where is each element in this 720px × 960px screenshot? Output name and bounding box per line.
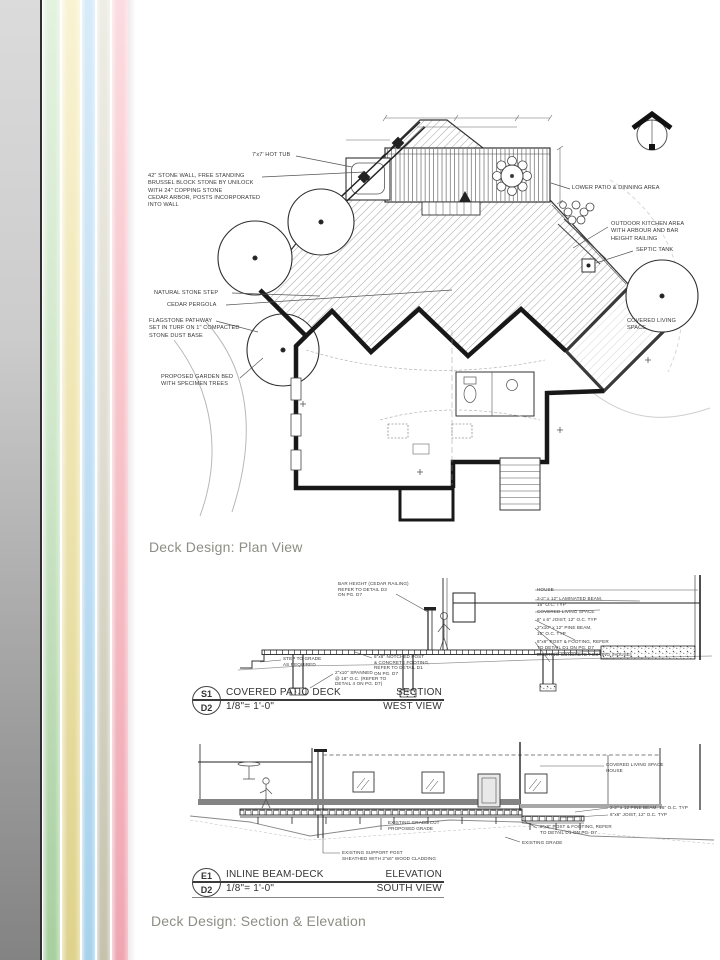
caption-plan-view: Deck Design: Plan View xyxy=(149,539,303,555)
stripe-fade xyxy=(128,0,136,960)
sheet-ref: D2 xyxy=(193,703,220,713)
label-natural-stone-step: NATURAL STONE STEP xyxy=(154,290,218,297)
label-stone-wall: 42" STONE WALL, FREE STANDING BRUSSEL BL… xyxy=(148,173,260,209)
label-house: HOUSE xyxy=(537,587,554,593)
section-leaders xyxy=(260,590,698,688)
patio-stairs xyxy=(422,202,480,215)
section-railing-person xyxy=(424,607,450,650)
label-lower-patio: LOWER PATIO & DINNING AREA xyxy=(572,185,660,192)
section-view-direction: WEST VIEW xyxy=(383,701,442,712)
north-arrow-icon xyxy=(633,114,671,150)
label-laminated-beam: 2-2" x 12" LAMINATED BEAM, 16" O.C. TYP xyxy=(537,596,602,607)
label-joist: 6" x 6" JOIST, 12" O.C. TYP xyxy=(537,617,597,623)
wall-windows xyxy=(291,378,301,470)
label-grade-cut: EXISTING GRADE CUT PROPOSED GRADE xyxy=(388,820,440,831)
label-step-to-grade: STEP TO GRADE AS REQUIRED xyxy=(283,656,321,667)
label-notched-post: 6"x6" NOTCHED POST & CONCRETE FOOTING, R… xyxy=(374,654,430,676)
title-block-bottom-rule xyxy=(192,897,444,898)
sidebar-gray-panel xyxy=(0,0,40,960)
sidebar-divider-line xyxy=(40,0,42,960)
label-flagstone-pathway: FLAGSTONE PATHWAY SET IN TURF ON 1" COMP… xyxy=(149,318,239,340)
section-type: SECTION xyxy=(396,687,442,698)
drawing-ref: E1 xyxy=(193,871,220,881)
drawing-ref: S1 xyxy=(193,689,220,699)
elevation-title: INLINE BEAM-DECK xyxy=(226,869,324,880)
label-covered-living: COVERED LIVING SPACE xyxy=(627,318,676,333)
label-pine-beam: 2"x10" x 12" PINE BEAM, 16" O.C. TYP xyxy=(537,625,592,636)
label-hot-tub: 7'x7' HOT TUB xyxy=(252,152,290,159)
label-support-post: EXISTING SUPPORT POST SHEATHED WITH 2"x6… xyxy=(342,850,436,861)
caption-section-elevation: Deck Design: Section & Elevation xyxy=(151,913,366,929)
stripe-beige xyxy=(97,0,110,960)
label-elev-joist: 6"x6" JOIST, 12" O.C. TYP xyxy=(610,812,667,818)
stripe-pink xyxy=(112,0,128,960)
label-septic-tank: SEPTIC TANK xyxy=(636,247,673,254)
elevation-structure xyxy=(198,742,700,838)
label-concrete-footing: EXISTING CONCRETE FOOTING (HOUSE) xyxy=(537,652,632,658)
label-covered-living-space: COVERED LIVING SPACE xyxy=(537,609,595,615)
elevation-view-direction: SOUTH VIEW xyxy=(377,883,442,894)
sheet-ref: D2 xyxy=(193,885,220,895)
presentation-slide: 7'x7' HOT TUB 42" STONE WALL, FREE STAND… xyxy=(0,0,720,960)
label-post-footing: 6"x6" POST & FOOTING, REFER TO DETAIL D1… xyxy=(537,639,609,650)
section-title-block: S1 D2 COVERED PATIO DECK SECTION 1/8"= 1… xyxy=(192,686,444,716)
dining-table xyxy=(493,157,532,196)
label-outdoor-kitchen: OUTDOOR KITCHEN AREA WITH ARBOUR AND BAR… xyxy=(611,221,684,243)
label-cedar-pergola: CEDAR PERGOLA xyxy=(167,302,216,309)
stripe-green xyxy=(43,0,60,960)
label-elev-pine-beam: 2-2" x 12 PINE BEAM, 16" O.C. TYP xyxy=(610,805,688,811)
stripe-blue xyxy=(82,0,95,960)
elevation-type: ELEVATION xyxy=(386,869,442,880)
septic-tank-symbol xyxy=(582,259,595,272)
elevation-title-block: E1 D2 INLINE BEAM-DECK ELEVATION 1/8"= 1… xyxy=(192,868,444,898)
elevation-scale: 1/8"= 1'-0" xyxy=(226,883,274,894)
drawing-reference-bubble: S1 D2 xyxy=(192,686,221,715)
stripe-yellow xyxy=(62,0,80,960)
plan-view-drawing xyxy=(148,6,718,536)
section-scale: 1/8"= 1'-0" xyxy=(226,701,274,712)
section-title: COVERED PATIO DECK xyxy=(226,687,341,698)
label-existing-grade: EXISTING GRADE xyxy=(522,840,562,846)
label-elev-post-footing: 6"x6" POST & FOOTING, REFER TO DETAIL D1… xyxy=(540,824,612,835)
drawing-reference-bubble: E1 D2 xyxy=(192,868,221,897)
label-garden-bed: PROPOSED GARDEN BED WITH SPECIMEN TREES xyxy=(161,374,233,389)
elevation-drawing xyxy=(190,735,715,870)
label-covered-living-house: COVERED LIVING SPACE HOUSE xyxy=(606,762,664,773)
label-bar-height-railing: BAR HEIGHT (CEDAR RAILING) REFER TO DETA… xyxy=(338,581,409,598)
elevation-grade-lines xyxy=(190,816,714,844)
